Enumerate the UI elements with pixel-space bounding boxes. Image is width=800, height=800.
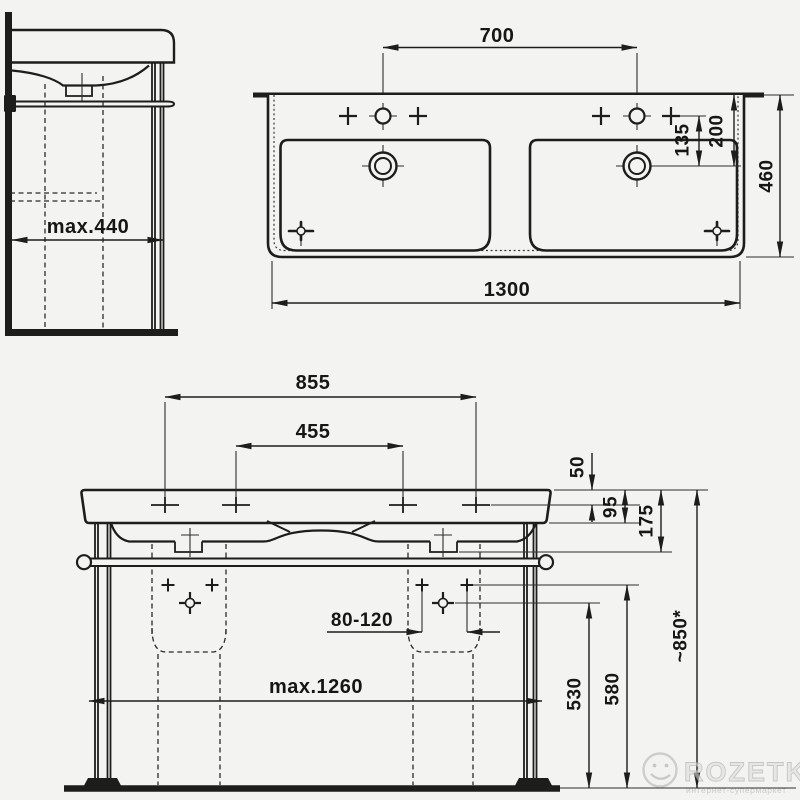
dim-label-hole-offset: 50 [568, 456, 589, 478]
watermark-tagline: интернет-супермаркет [686, 785, 787, 795]
dim-label-inner-holes: 455 [296, 421, 331, 443]
side-view: max.440 [4, 12, 178, 334]
dim-label-drain-range: 80-120 [331, 610, 393, 631]
plan-view: 700 [253, 25, 794, 309]
dim-label-outer-holes: 855 [296, 372, 331, 394]
dim-label-install-height: ~850* [671, 610, 692, 663]
dim-label-apron-height: 95 [601, 496, 622, 518]
dim-label-max-depth: max.440 [47, 216, 129, 238]
basin-side-profile [12, 30, 174, 63]
front-view: 855 455 [64, 372, 796, 789]
hidden-siphon-side [10, 76, 103, 330]
dim-label-tap-to-drain: 135 [673, 123, 694, 156]
dim-label-connection-height: 580 [603, 672, 624, 705]
wall-bracket [4, 95, 16, 112]
towel-rail-right-end [539, 555, 553, 569]
connection-marks-right [416, 579, 474, 615]
rozetka-logo-icon [644, 754, 677, 787]
dim-label-total-height: 175 [637, 504, 658, 537]
left-foot [84, 778, 121, 786]
hidden-drain-left [152, 544, 226, 785]
washbasin-front-body [81, 490, 550, 523]
towel-rail-front [84, 559, 546, 567]
hidden-drain-right [408, 544, 480, 785]
drain-pocket-side [66, 86, 92, 97]
dim-label-supply-height: 530 [565, 677, 586, 710]
dim-label-tap-spacing: 700 [480, 25, 515, 47]
connection-marks-left [162, 579, 219, 615]
towel-rail-side [12, 102, 174, 107]
technical-drawing-page: max.440 700 [0, 0, 800, 800]
right-foot [515, 778, 552, 786]
dim-label-width: 1300 [484, 279, 531, 301]
watermark-brand: ROZETKA [684, 757, 800, 787]
dim-label-frame-width: max.1260 [269, 676, 363, 698]
watermark: ROZETKA интернет-супермаркет [644, 754, 800, 796]
basin-inner-curve [12, 66, 149, 86]
towel-rail-left-end [77, 555, 91, 569]
dim-label-depth: 460 [757, 159, 778, 192]
washbasin-dimension-drawing: max.440 700 [0, 0, 800, 800]
dim-label-back-to-drain: 200 [707, 114, 728, 147]
